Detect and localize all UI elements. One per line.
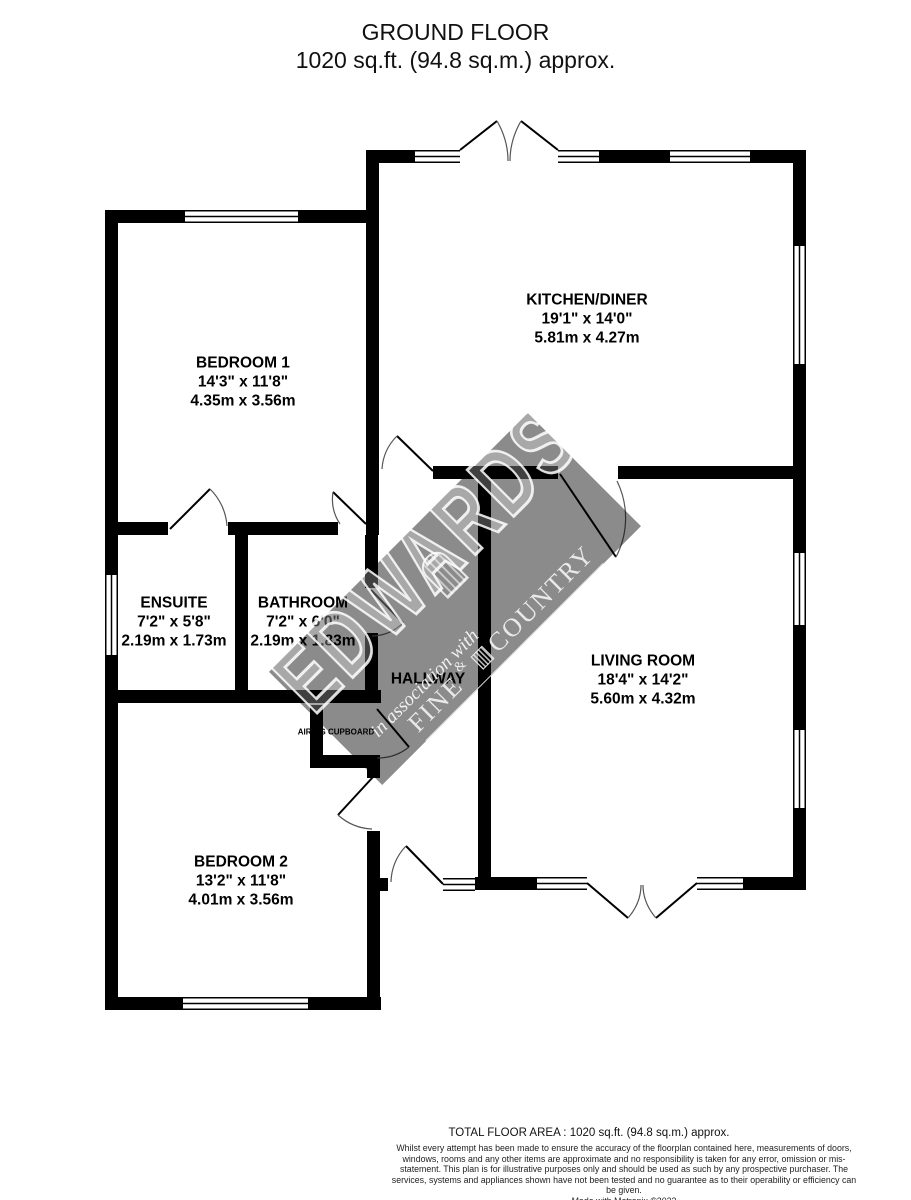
room-size-metric: 4.01m x 3.56m — [188, 891, 293, 910]
window-icon — [183, 998, 308, 1010]
window-icon — [185, 211, 298, 223]
total-floor-area: TOTAL FLOOR AREA : 1020 sq.ft. (94.8 sq.… — [390, 1126, 788, 1140]
window-icon — [443, 879, 475, 891]
room-label-kitchen-diner: KITCHEN/DINER 19'1" x 14'0" 5.81m x 4.27… — [526, 291, 647, 348]
metropix-credit: Made with Metropix ©2022 — [390, 1196, 858, 1200]
window-icon — [106, 575, 118, 655]
room-size-imperial: 18'4" x 14'2" — [590, 671, 695, 690]
french-doors-bottom-icon — [587, 883, 697, 918]
room-label-ensuite: ENSUITE 7'2" x 5'8" 2.19m x 1.73m — [121, 594, 226, 651]
window-icon — [794, 730, 806, 808]
room-name: BEDROOM 2 — [188, 853, 293, 872]
room-name: LIVING ROOM — [590, 652, 695, 671]
french-doors-top-icon — [460, 121, 558, 150]
kitchen-door-icon — [397, 436, 433, 471]
entrance-door-icon — [406, 846, 443, 884]
room-size-imperial: 13'2" x 11'8" — [188, 872, 293, 891]
footer: TOTAL FLOOR AREA : 1020 sq.ft. (94.8 sq.… — [390, 1126, 858, 1200]
room-size-imperial: 14'3" x 11'8" — [190, 373, 295, 392]
window-icon — [794, 553, 806, 625]
window-icon — [415, 151, 460, 163]
room-name: BEDROOM 1 — [190, 354, 295, 373]
window-icon — [697, 878, 743, 890]
ensuite-door-icon — [170, 489, 210, 529]
room-label-bedroom1: BEDROOM 1 14'3" x 11'8" 4.35m x 3.56m — [190, 354, 295, 411]
window-icon — [537, 878, 587, 890]
room-size-imperial: 7'2" x 5'8" — [121, 613, 226, 632]
bedroom2-door-icon — [338, 777, 373, 815]
room-name: ENSUITE — [121, 594, 226, 613]
window-icon — [670, 151, 750, 163]
window-icon — [558, 151, 599, 163]
window-icon — [794, 246, 806, 364]
room-size-metric: 5.81m x 4.27m — [526, 329, 647, 348]
room-label-living-room: LIVING ROOM 18'4" x 14'2" 5.60m x 4.32m — [590, 652, 695, 709]
bedroom1-door-icon — [333, 492, 366, 524]
room-label-bedroom2: BEDROOM 2 13'2" x 11'8" 4.01m x 3.56m — [188, 853, 293, 910]
room-size-metric: 2.19m x 1.73m — [121, 632, 226, 651]
floorplan-page: GROUND FLOOR 1020 sq.ft. (94.8 sq.m.) ap… — [0, 0, 911, 1200]
room-size-metric: 4.35m x 3.56m — [190, 392, 295, 411]
disclaimer-text: Whilst every attempt has been made to en… — [390, 1143, 858, 1196]
room-size-imperial: 19'1" x 14'0" — [526, 310, 647, 329]
room-size-metric: 5.60m x 4.32m — [590, 690, 695, 709]
room-name: KITCHEN/DINER — [526, 291, 647, 310]
